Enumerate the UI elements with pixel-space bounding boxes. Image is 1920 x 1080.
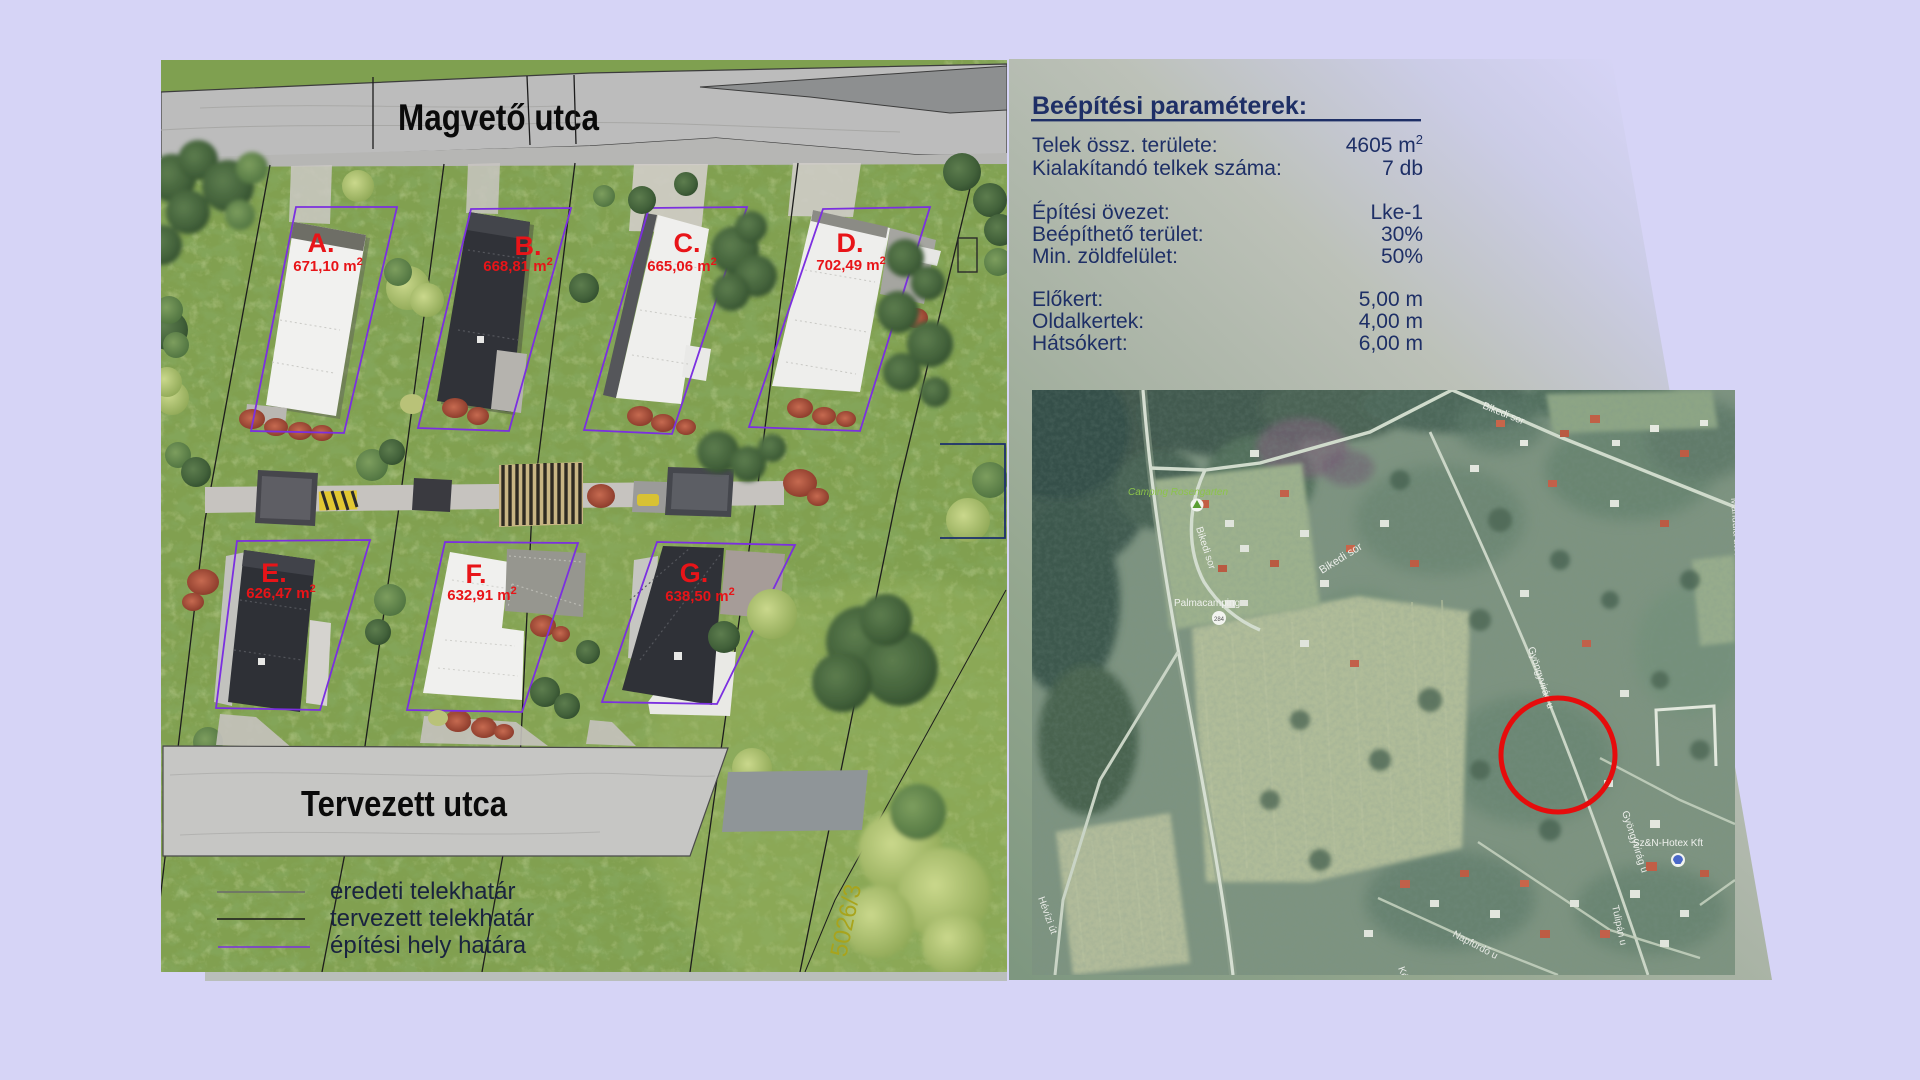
svg-text:5,00 m: 5,00 m bbox=[1359, 288, 1423, 311]
svg-text:Kialakítandó telkek száma:: Kialakítandó telkek száma: bbox=[1032, 157, 1282, 180]
svg-text:632,91 m2: 632,91 m2 bbox=[447, 585, 517, 604]
svg-text:Sz&N-Hotex Kft: Sz&N-Hotex Kft bbox=[1633, 838, 1703, 849]
svg-text:50%: 50% bbox=[1381, 245, 1423, 268]
svg-text:4,00 m: 4,00 m bbox=[1359, 310, 1423, 333]
svg-text:Lke-1: Lke-1 bbox=[1370, 201, 1423, 224]
svg-text:6,00 m: 6,00 m bbox=[1359, 332, 1423, 355]
svg-text:Min. zöldfelület:: Min. zöldfelület: bbox=[1032, 245, 1178, 268]
svg-text:D.: D. bbox=[837, 228, 864, 258]
svg-text:702,49 m2: 702,49 m2 bbox=[816, 255, 886, 274]
svg-text:Építési övezet:: Építési övezet: bbox=[1032, 201, 1170, 224]
svg-text:626,47 m2: 626,47 m2 bbox=[246, 583, 316, 602]
svg-text:Magvető utca: Magvető utca bbox=[398, 97, 599, 138]
svg-text:30%: 30% bbox=[1381, 223, 1423, 246]
svg-text:Tervezett utca: Tervezett utca bbox=[301, 783, 508, 824]
svg-text:665,06 m2: 665,06 m2 bbox=[647, 256, 717, 275]
svg-text:G.: G. bbox=[680, 558, 709, 588]
svg-text:eredeti telekhatár: eredeti telekhatár bbox=[330, 878, 515, 905]
svg-text:Beépítési paraméterek:: Beépítési paraméterek: bbox=[1032, 92, 1307, 120]
svg-text:Oldalkertek:: Oldalkertek: bbox=[1032, 310, 1144, 333]
svg-text:A.: A. bbox=[308, 228, 335, 258]
svg-text:építési hely határa: építési hely határa bbox=[330, 932, 527, 959]
svg-text:E.: E. bbox=[261, 558, 287, 588]
svg-text:B.: B. bbox=[515, 231, 542, 261]
svg-text:671,10 m2: 671,10 m2 bbox=[293, 256, 363, 275]
svg-text:C.: C. bbox=[674, 228, 701, 258]
svg-text:7 db: 7 db bbox=[1382, 157, 1423, 180]
svg-text:668,81 m2: 668,81 m2 bbox=[483, 256, 553, 275]
svg-text:Hátsókert:: Hátsókert: bbox=[1032, 332, 1128, 355]
svg-text:638,50 m2: 638,50 m2 bbox=[665, 586, 735, 605]
svg-text:Előkert:: Előkert: bbox=[1032, 288, 1103, 311]
svg-text:Telek össz. területe:: Telek össz. területe: bbox=[1032, 134, 1218, 157]
svg-text:Palmacamping: Palmacamping bbox=[1174, 598, 1240, 609]
svg-text:4605 m2: 4605 m2 bbox=[1346, 132, 1423, 157]
svg-text:284: 284 bbox=[1214, 617, 1225, 623]
svg-text:Camping Rosengarten: Camping Rosengarten bbox=[1128, 487, 1228, 498]
svg-text:tervezett telekhatár: tervezett telekhatár bbox=[330, 905, 534, 932]
svg-text:F.: F. bbox=[465, 559, 486, 589]
svg-text:Beépíthető terület:: Beépíthető terület: bbox=[1032, 223, 1204, 246]
